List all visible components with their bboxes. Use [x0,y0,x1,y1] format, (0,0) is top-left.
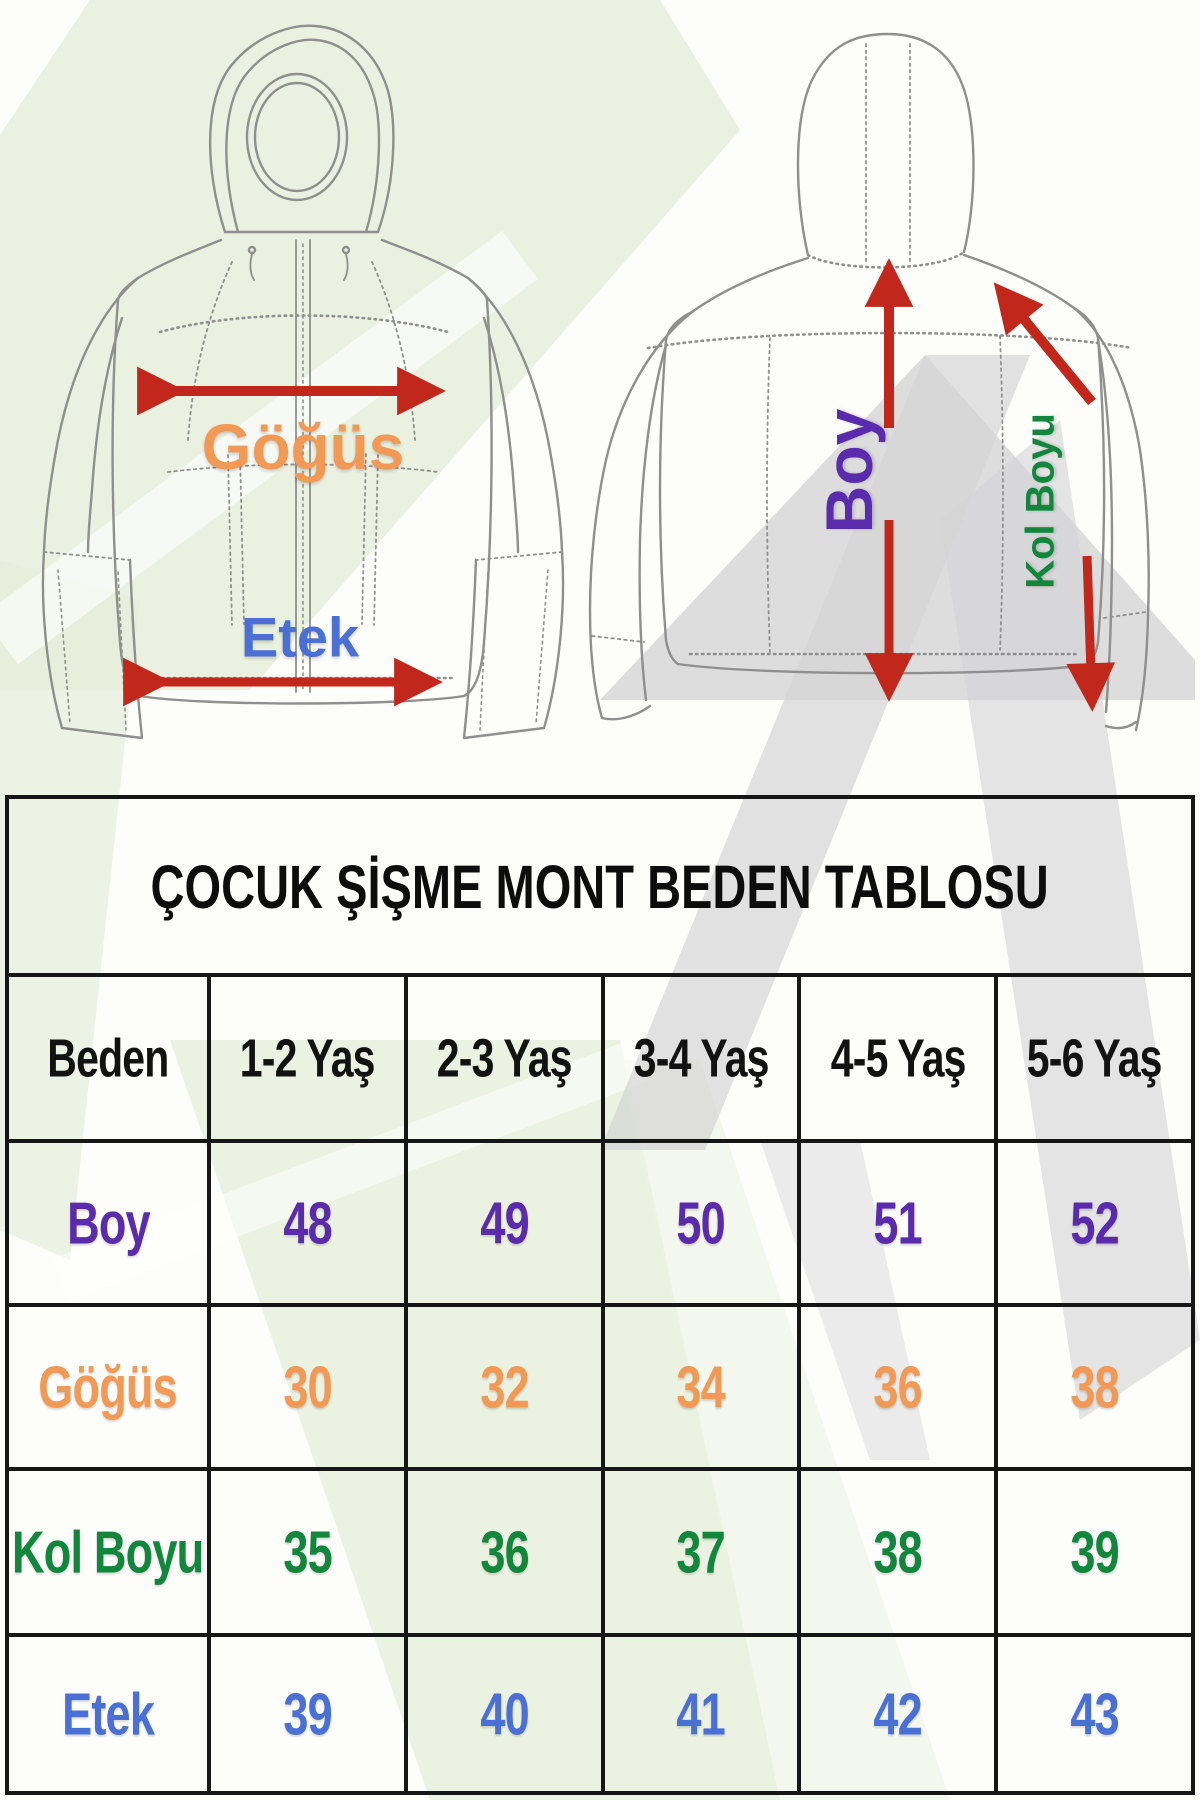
back-jacket-drawing [590,34,1149,730]
cell-gogus-5-6: 38 [994,1303,1191,1467]
hem-measure-label: Etek [241,605,359,670]
jacket-diagrams [0,0,1200,800]
row-label-etek: Etek [9,1633,207,1791]
cell-etek-5-6: 43 [994,1633,1191,1791]
cell-boy-4-5: 51 [797,1139,994,1303]
cell-gogus-1-2: 30 [207,1303,404,1467]
row-label-kol-boyu: Kol Boyu [9,1467,207,1633]
chest-measure-label: Göğüs [202,410,405,484]
row-label-boy: Boy [9,1139,207,1303]
table-title: ÇOCUK ŞİŞME MONT BEDEN TABLOSU [151,850,1049,922]
sleeve-cuff-arrow [1087,556,1092,702]
cell-etek-2-3: 40 [404,1633,601,1791]
cell-kol-2-3: 36 [404,1467,601,1633]
size-chart-image: Göğüs Etek Boy Kol Boyu ÇOCUK ŞİŞME MONT… [0,0,1200,1800]
cell-kol-5-6: 39 [994,1467,1191,1633]
cell-kol-1-2: 35 [207,1467,404,1633]
header-cell-3-4-yas: 3-4 Yaş [601,973,798,1139]
cell-kol-4-5: 38 [797,1467,994,1633]
cell-gogus-4-5: 36 [797,1303,994,1467]
cell-boy-3-4: 50 [601,1139,798,1303]
cell-etek-4-5: 42 [797,1633,994,1791]
header-cell-4-5-yas: 4-5 Yaş [797,973,994,1139]
cell-gogus-3-4: 34 [601,1303,798,1467]
size-table: ÇOCUK ŞİŞME MONT BEDEN TABLOSU Beden 1-2… [5,795,1195,1795]
cell-kol-3-4: 37 [601,1467,798,1633]
cell-boy-1-2: 48 [207,1139,404,1303]
sleeve-diagonal-arrow [1000,290,1092,402]
cell-etek-1-2: 39 [207,1633,404,1791]
cell-gogus-2-3: 32 [404,1303,601,1467]
header-cell-2-3-yas: 2-3 Yaş [404,973,601,1139]
row-label-gogus: Göğüs [9,1303,207,1467]
header-cell-beden: Beden [9,973,207,1139]
header-cell-1-2-yas: 1-2 Yaş [207,973,404,1139]
length-measure-label: Boy [811,409,887,534]
table-title-cell: ÇOCUK ŞİŞME MONT BEDEN TABLOSU [9,799,1191,973]
sleeve-measure-label: Kol Boyu [1019,413,1064,589]
header-cell-5-6-yas: 5-6 Yaş [994,973,1191,1139]
cell-boy-5-6: 52 [994,1139,1191,1303]
cell-boy-2-3: 49 [404,1139,601,1303]
cell-etek-3-4: 41 [601,1633,798,1791]
